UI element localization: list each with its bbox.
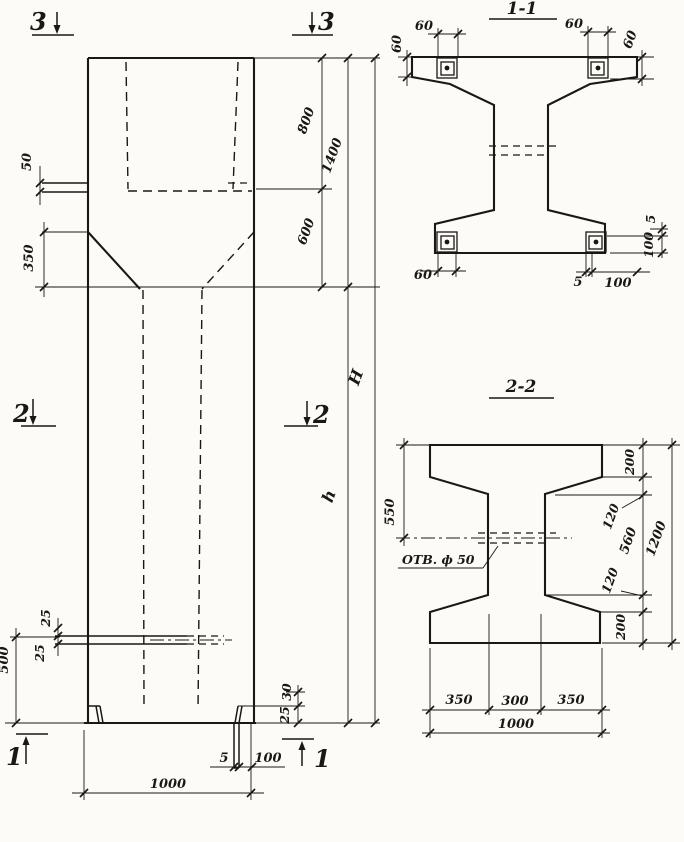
dim-100-base-label: 100: [254, 751, 281, 766]
dim-5-100-right: 5 100: [607, 215, 668, 258]
dim-60-trh-label: 60: [565, 17, 583, 32]
dim-chain-1400: 1400: [319, 54, 352, 291]
i-section-outline: [430, 445, 602, 643]
dim-200-top-label: 200: [622, 449, 637, 476]
section-marker-2-right: 2: [284, 400, 330, 429]
dim-5-r-label: 5: [643, 215, 658, 224]
web-hole-lines: [489, 146, 556, 155]
dim-30-label: 30: [279, 683, 294, 701]
dim-60-top-left-v: 60: [390, 35, 412, 86]
column-working-drawing: 50 350 800 600 1400 h: [0, 0, 684, 842]
dim-600-label: 600: [295, 216, 318, 247]
dim-5-100-bottom: 5 100: [573, 254, 650, 291]
arrow-down-icon: [54, 25, 61, 34]
dim-500: 500: [0, 628, 20, 727]
dim-25-25: 25 25: [32, 609, 62, 662]
dim-60-tlh-label: 60: [415, 19, 433, 34]
marker-2-left-label: 2: [12, 399, 30, 428]
hole-callout-label: ОТВ. ф 50: [402, 552, 475, 567]
dim-120-bot-label: 120: [598, 565, 621, 595]
dim-550-label: 550: [383, 498, 398, 525]
dim-chain-H: H: [344, 54, 379, 727]
dim-560-label: 560: [617, 525, 640, 556]
dim-60-top-left-h: 60: [415, 19, 466, 56]
arrow-down-icon: [309, 25, 316, 34]
dim-chain-800-600: 800 600: [295, 54, 326, 291]
arrow-down-icon: [304, 417, 311, 426]
hole-callout: ОТВ. ф 50: [398, 546, 498, 568]
dim-350-label: 350: [22, 244, 37, 271]
dim-h-label: h: [318, 487, 340, 504]
section-2-2-title: 2-2: [489, 377, 554, 398]
section-1-1-title: 1-1: [489, 0, 557, 19]
dim-foot-30-25: 30 25: [277, 683, 302, 727]
dim-350: 350: [22, 222, 48, 297]
section-1-1-title-label: 1-1: [507, 0, 538, 19]
dim-H-label: H: [344, 366, 368, 388]
dim-25-foot-label: 25: [277, 706, 292, 724]
dim-500-label: 500: [0, 646, 12, 673]
dim-bottom-chain: 350 300 350 1000: [422, 614, 610, 738]
section-1-1-view: 1-1: [390, 0, 668, 291]
marker-1-left-label: 1: [6, 742, 23, 771]
dim-5-base-label: 5: [219, 751, 228, 766]
marker-3-right-label: 3: [318, 7, 335, 36]
arrow-up-icon: [299, 741, 306, 750]
dim-50: 50: [20, 153, 44, 205]
section-marker-3-left: 3: [30, 7, 74, 36]
arrow-up-icon: [23, 736, 30, 745]
dim-1000: 1000: [72, 777, 264, 797]
engineering-drawing-sheet: 50 350 800 600 1400 h: [0, 0, 684, 842]
section-marker-1-left: 1: [6, 734, 48, 771]
section-marker-2-left: 2: [12, 399, 56, 428]
dim-25-bot-label: 25: [32, 644, 47, 662]
dim-60-bottom-left: 60: [414, 254, 466, 283]
hidden-lines: [126, 62, 252, 710]
marker-3-left-label: 3: [30, 7, 47, 36]
dim-5-b-label: 5: [573, 275, 582, 290]
dim-chain-right: 200 120 560 120 200: [598, 438, 647, 650]
dim-350-left-label: 350: [445, 693, 472, 708]
section-2-2-view: 2-2 ОТВ. ф 50 550: [383, 377, 680, 738]
dim-chain-h: h: [318, 287, 352, 727]
arrow-down-icon: [30, 416, 37, 425]
top-embed-lines: [42, 183, 88, 232]
dim-60-trv-label: 60: [621, 29, 641, 51]
dim-1400-label: 1400: [319, 136, 345, 175]
dim-120-top-label: 120: [599, 501, 622, 531]
dim-100-b-label: 100: [604, 276, 631, 291]
dim-25-top-label: 25: [38, 609, 53, 627]
dim-800-label: 800: [295, 105, 318, 136]
dim-5-100-base: 5 100: [210, 751, 285, 771]
dim-1200-label: 1200: [643, 519, 669, 558]
dim-1000-label: 1000: [150, 777, 186, 792]
dim-200-bot-label: 200: [613, 614, 628, 641]
column-outline: [84, 58, 256, 723]
dim-chain-1200: 1200: [643, 438, 676, 650]
dim-60-bl-label: 60: [414, 268, 432, 283]
i-section-outline: [412, 57, 637, 253]
dim-60-top-right-h: 60: [565, 17, 616, 56]
dim-300-label: 300: [501, 694, 528, 709]
marker-2-right-label: 2: [312, 400, 330, 429]
dim-60-tlv-label: 60: [390, 35, 405, 53]
section-marker-3-right: 3: [292, 7, 335, 36]
elevation-view: 50 350 800 600 1400 h: [0, 7, 380, 800]
dim-100-r-label: 100: [641, 232, 656, 258]
dim-550: 550: [383, 438, 430, 546]
dim-50-label: 50: [20, 153, 35, 171]
section-2-2-title-label: 2-2: [505, 377, 537, 397]
dim-1000-sec-label: 1000: [498, 717, 534, 732]
dim-350-right-label: 350: [557, 693, 584, 708]
marker-1-right-label: 1: [314, 744, 331, 773]
section-marker-1-right: 1: [282, 739, 331, 773]
